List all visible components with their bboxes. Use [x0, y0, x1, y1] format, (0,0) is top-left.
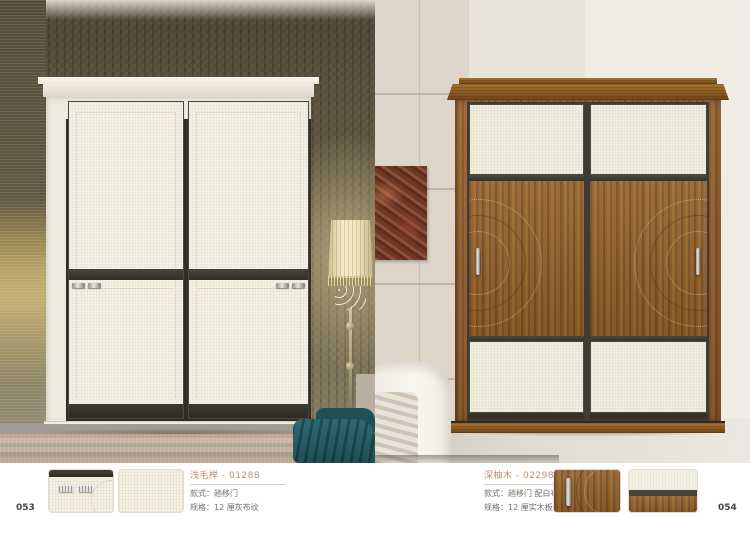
door-handle — [696, 248, 700, 275]
stitch-line — [76, 112, 77, 398]
product-spec: 规格：12 厘灰布纹 — [190, 502, 340, 513]
stitch-line — [79, 288, 173, 289]
left-product-info: 浅毛榉 - 01288 款式：趟移门 规格：12 厘灰布纹 — [190, 468, 340, 513]
door-handle — [276, 283, 289, 288]
sliding-door-left — [68, 101, 184, 419]
stitch-line — [199, 112, 298, 113]
lamp-fringe — [328, 276, 373, 286]
sliding-door-right — [188, 101, 309, 419]
door-mid-rail — [189, 269, 308, 280]
door-handle — [88, 283, 101, 288]
wall-artwork — [375, 166, 427, 260]
wood-wardrobe — [447, 78, 729, 433]
info-strip: 浅毛榉 - 01288 款式：趟移门 规格：12 厘灰布纹 深柚木 - 0229… — [0, 463, 750, 534]
swatch-stitch-curve — [91, 480, 114, 513]
sliding-door-right — [590, 104, 707, 419]
door-kick-rail — [469, 413, 584, 419]
swatch-linen-part — [629, 470, 697, 490]
lamp-knob — [346, 362, 354, 370]
wardrobe-crown-molding — [38, 77, 319, 84]
stitch-line — [175, 112, 176, 398]
door-bottom-panel — [590, 341, 707, 413]
door-wood-panel — [469, 181, 584, 336]
page-number-left: 053 — [16, 503, 35, 513]
stitch-line — [300, 112, 301, 398]
door-wood-panel — [590, 181, 707, 336]
sofa-shadow — [375, 455, 559, 463]
left-scene-photo — [0, 0, 375, 463]
wardrobe-base — [451, 421, 725, 433]
stitch-line — [199, 288, 298, 289]
door-bottom-panel — [469, 341, 584, 413]
stitch-line — [196, 112, 197, 398]
page-number-right: 054 — [718, 503, 737, 513]
wardrobe-crown-step — [459, 78, 717, 84]
title-rule — [190, 484, 286, 485]
swatch-panel-combo — [628, 469, 698, 513]
striped-throw — [375, 392, 418, 463]
lamp-knob — [346, 322, 354, 330]
door-handle — [292, 283, 305, 288]
lamp-shade — [328, 220, 373, 278]
door-kick-rail — [69, 404, 183, 419]
swatch-handle — [79, 486, 93, 492]
swatch-handle — [566, 478, 571, 506]
door-top-panel — [469, 104, 584, 175]
swatch-linen-texture — [118, 469, 184, 513]
catalog-spread: 浅毛榉 - 01288 款式：趟移门 规格：12 厘灰布纹 深柚木 - 0229… — [0, 0, 750, 534]
swatch-white-door-detail — [48, 469, 114, 513]
stitch-line — [79, 112, 173, 113]
product-title: 浅毛榉 - 01288 — [190, 468, 340, 481]
white-wardrobe — [38, 77, 319, 433]
door-kick-rail — [189, 404, 308, 419]
door-kick-rail — [590, 413, 707, 419]
sliding-door-left — [469, 104, 584, 419]
right-scene-photo — [375, 0, 750, 463]
wardrobe-crown — [447, 84, 729, 100]
swatch-wood-door-detail — [553, 469, 621, 513]
swatch-wood-part — [629, 496, 697, 513]
lamp-crystals — [335, 286, 366, 310]
swatch-top-rail — [49, 470, 113, 477]
swatch-handle — [59, 486, 73, 492]
swatch-arc — [576, 469, 621, 513]
teal-cushion — [293, 419, 375, 463]
door-top-panel — [590, 104, 707, 175]
door-handle — [476, 248, 480, 275]
wardrobe-crown — [43, 84, 314, 97]
door-mid-rail — [69, 269, 183, 280]
product-style: 款式：趟移门 — [190, 488, 340, 499]
door-handle — [72, 283, 85, 288]
white-sofa — [375, 362, 451, 463]
